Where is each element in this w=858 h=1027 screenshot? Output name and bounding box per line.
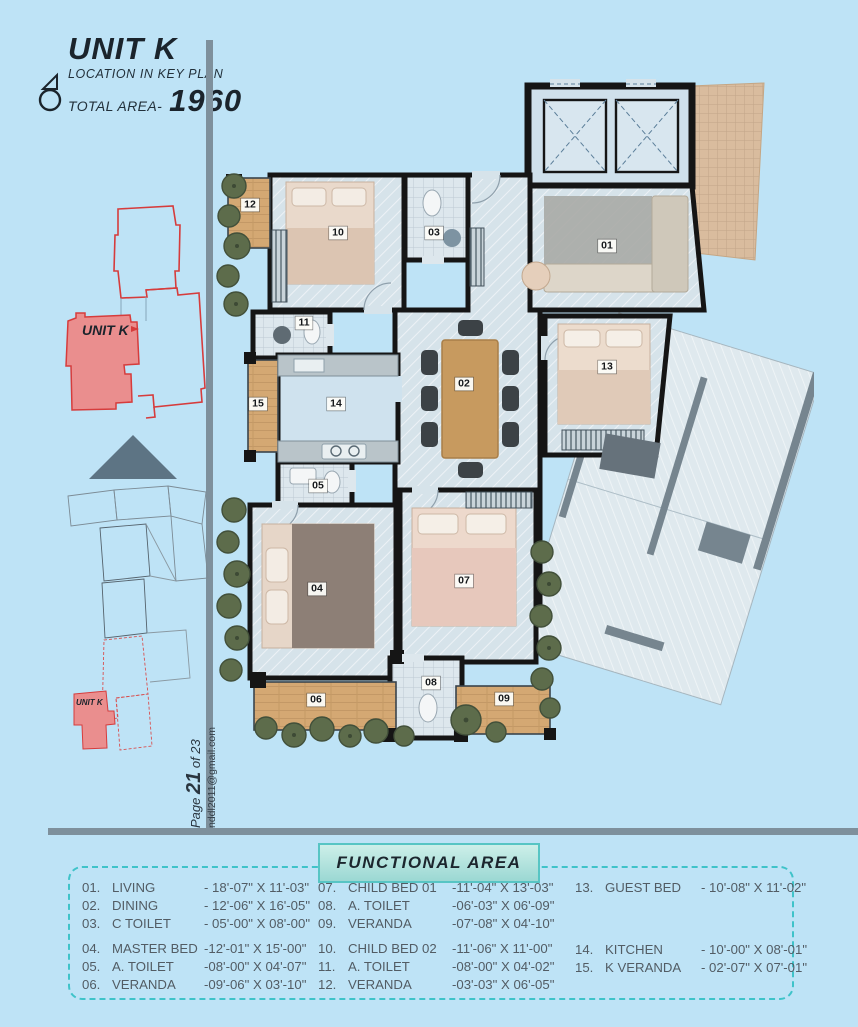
wardrobe-10 [272, 230, 287, 302]
horizontal-divider [48, 828, 858, 835]
room-label-05: 05 [309, 480, 327, 493]
wardrobe-07 [466, 492, 532, 508]
room-label-14: 14 [327, 398, 345, 411]
legend-row: 13.GUEST BED- 10'-08" X 11'-02" [575, 878, 807, 896]
key-plan-unit-label: UNIT K [82, 322, 129, 338]
floor-plan-drawing [214, 78, 814, 768]
room-label-06: 06 [307, 694, 325, 707]
site-plan-unit-zone [102, 636, 152, 750]
foyer-cabinet [470, 228, 484, 286]
toilet-08-fixture [419, 694, 437, 722]
room-label-02: 02 [455, 378, 473, 391]
page-info: Page 21 of 23 nddl2011@gmail.com [183, 678, 218, 828]
room-label-04: 04 [308, 583, 326, 596]
legend-row: 06.VERANDA-09'-06" X 03'-10" [82, 975, 310, 993]
bed-child-01 [412, 508, 516, 626]
floor-plan: 12 10 03 01 11 15 14 02 13 05 04 07 06 0… [214, 78, 814, 768]
room-label-08: 08 [422, 677, 440, 690]
legend-row: 01.LIVING- 18'-07" X 11'-03" [82, 878, 310, 896]
north-triangle [89, 435, 177, 479]
legend-row: 12.VERANDA-03'-03" X 06'-05" [318, 975, 554, 993]
elevator-core [528, 86, 692, 186]
room-label-03: 03 [425, 227, 443, 240]
functional-area-title: FUNCTIONAL AREA [337, 853, 522, 873]
room-label-09: 09 [495, 693, 513, 706]
legend-row: 14.KITCHEN- 10'-00" X 08'-01" [575, 940, 807, 958]
legend-row: 03.C TOILET- 05'-00" X 08'-00" [82, 914, 310, 932]
bed-guest [558, 324, 650, 424]
legend-row: 04.MASTER BED-12'-01" X 15'-00" [82, 939, 310, 957]
functional-area-table: 01.LIVING- 18'-07" X 11'-03" 02.DINING- … [68, 866, 794, 1000]
room-label-07: 07 [455, 575, 473, 588]
room-label-12: 12 [241, 199, 259, 212]
floorplan-page: { "header": { "unit_title": "UNIT K", "k… [0, 0, 858, 1027]
room-label-11: 11 [295, 317, 312, 330]
legend-row: 15.K VERANDA- 02'-07" X 07'-01" [575, 958, 807, 976]
compass-logo-icon [36, 70, 66, 114]
functional-area-header: FUNCTIONAL AREA [318, 843, 540, 883]
legend-row: 11.A. TOILET-08'-00" X 04'-02" [318, 957, 554, 975]
room-label-15: 15 [249, 398, 267, 411]
room-label-13: 13 [598, 361, 616, 374]
legend-row: 09.VERANDA-07'-08" X 04'-10" [318, 914, 554, 932]
legend-row: 10.CHILD BED 02-11'-06" X 11'-00" [318, 939, 554, 957]
page-number: 21 [183, 772, 205, 794]
site-plan-unit-label: UNIT K [76, 698, 103, 707]
room-label-10: 10 [329, 227, 347, 240]
total-area-label: TOTAL AREA- [68, 98, 162, 114]
room-label-01: 01 [598, 240, 616, 253]
legend-row: 02.DINING- 12'-06" X 16'-05" [82, 896, 310, 914]
room-c-toilet [405, 175, 468, 260]
legend-column-3: 13.GUEST BED- 10'-08" X 11'-02" 14.KITCH… [575, 878, 807, 976]
site-plan-outlines [68, 486, 208, 682]
key-plan [58, 195, 210, 487]
legend-row: 05.A. TOILET-08'-00" X 04'-07" [82, 957, 310, 975]
unit-title: UNIT K [68, 33, 242, 64]
legend-column-2: 07.CHILD BED 01-11'-04" X 13'-03" 08.A. … [318, 878, 554, 993]
page-number-line: Page 21 of 23 [183, 678, 206, 828]
legend-row: 08.A. TOILET-06'-03" X 06'-09" [318, 896, 554, 914]
legend-column-1: 01.LIVING- 18'-07" X 11'-03" 02.DINING- … [82, 878, 310, 993]
